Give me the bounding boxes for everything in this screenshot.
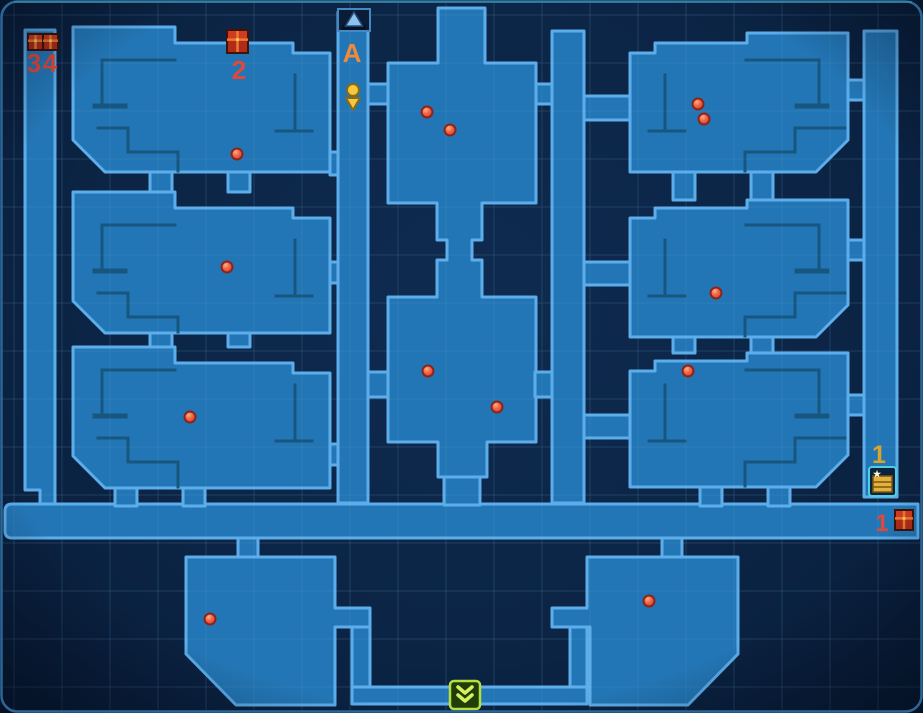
- dungeon-map-canvas[interactable]: ★ 342A11: [0, 0, 923, 713]
- vignette: [0, 0, 923, 713]
- game-map-screen: ★ 342A11: [0, 0, 923, 713]
